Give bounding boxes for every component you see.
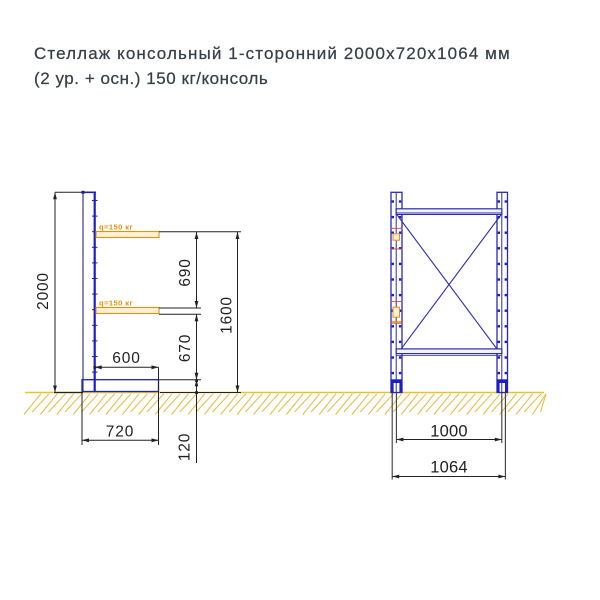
svg-text:720: 720 — [106, 424, 135, 441]
svg-text:q=150 кг: q=150 кг — [99, 299, 133, 308]
svg-text:690: 690 — [177, 258, 194, 286]
svg-text:2000: 2000 — [35, 272, 52, 310]
svg-text:120: 120 — [177, 433, 194, 461]
svg-text:q=150 кг: q=150 кг — [99, 223, 133, 232]
svg-text:1064: 1064 — [430, 459, 468, 477]
svg-text:600: 600 — [112, 350, 141, 367]
svg-text:1600: 1600 — [219, 296, 236, 334]
svg-text:1000: 1000 — [430, 423, 468, 441]
svg-text:670: 670 — [177, 334, 194, 362]
